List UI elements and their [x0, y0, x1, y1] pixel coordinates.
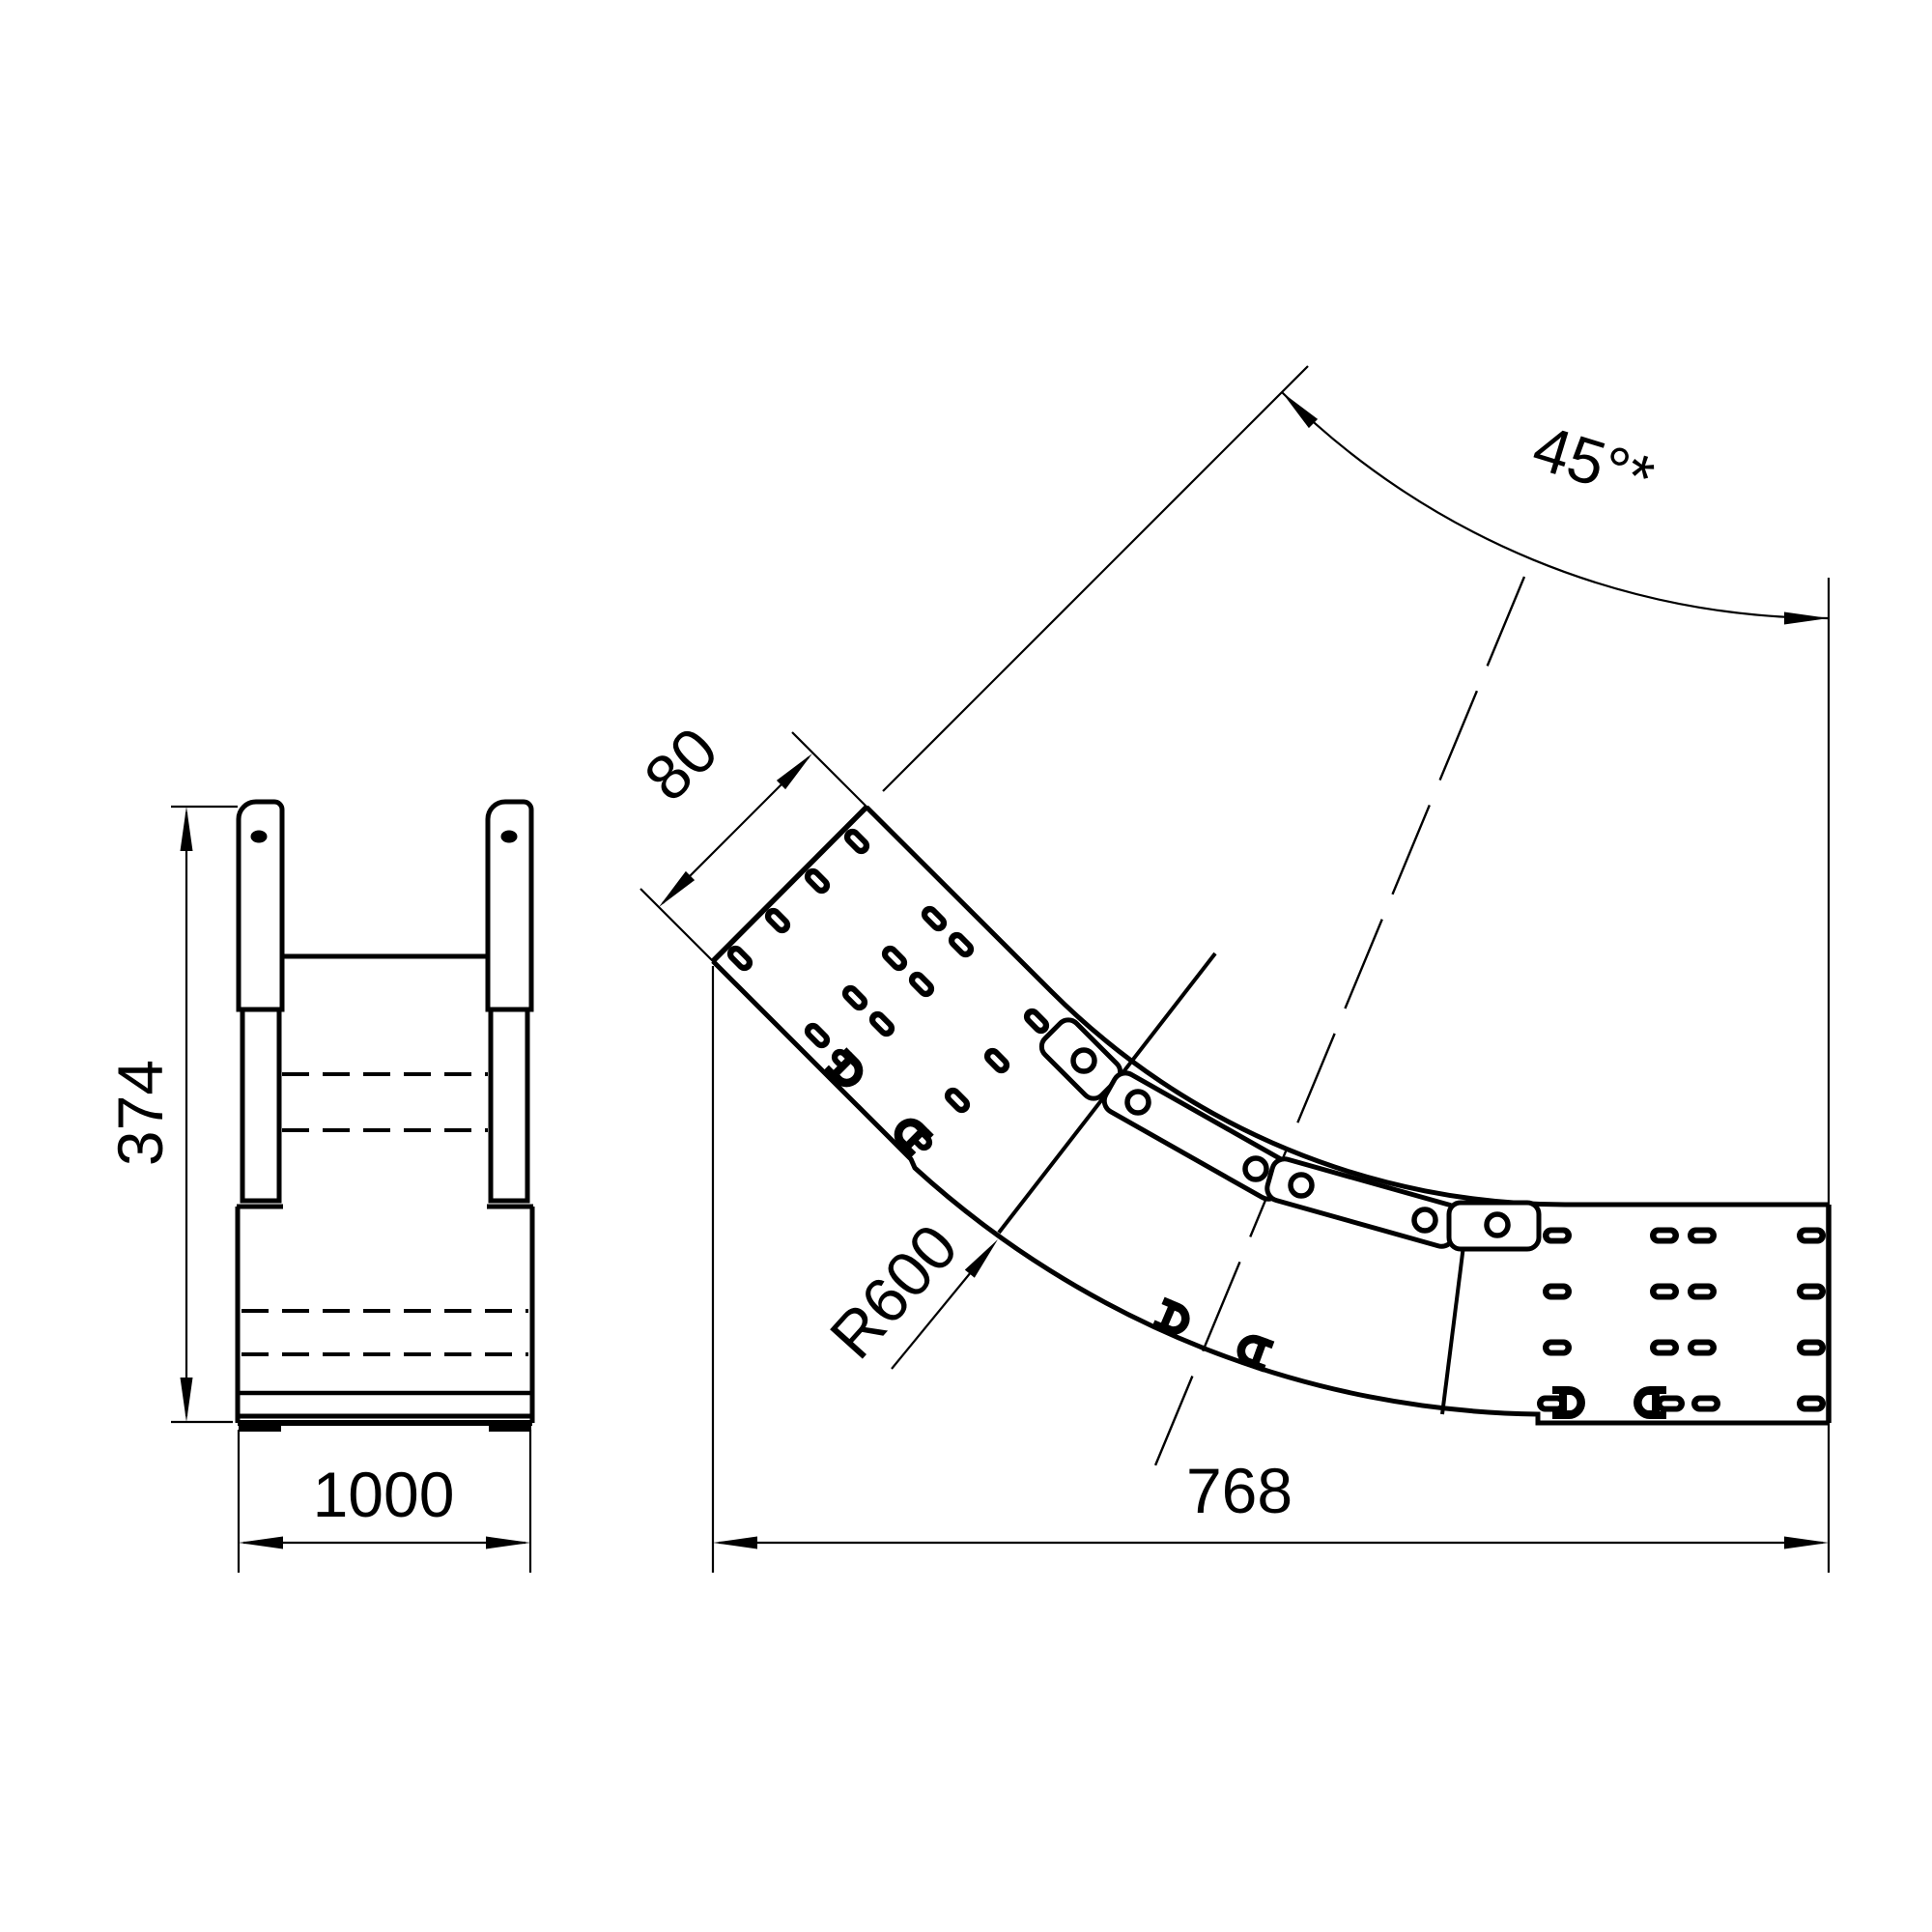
perforation-slots-inclined — [724, 825, 1052, 1153]
arrowhead — [659, 871, 695, 907]
perforation-slot — [1797, 1284, 1826, 1300]
perforation-slot — [1688, 1284, 1717, 1300]
perforation-slot — [1543, 1284, 1572, 1300]
dimension-height-374 — [171, 807, 238, 1422]
arrowhead-right — [1784, 1537, 1829, 1549]
perforation-slots-right-arm — [1537, 1228, 1826, 1412]
arrowhead-right — [486, 1537, 530, 1549]
drawing-sheet: 374 1000 — [0, 0, 1932, 1932]
perforation-slot — [866, 1008, 897, 1039]
arrowhead — [777, 753, 812, 789]
hinge-pivot-hole — [1073, 1050, 1094, 1071]
hinge-pivot-hole — [1127, 1092, 1149, 1113]
hinge-pivot-hole — [1291, 1175, 1312, 1196]
arrowhead-left — [713, 1537, 757, 1549]
front-left-lower-bar — [242, 1009, 279, 1201]
bisector-centerline — [1155, 577, 1524, 1465]
perforation-slot — [801, 1019, 833, 1051]
dimension-angle-45 — [883, 366, 1829, 791]
width-dimension-label: 1000 — [313, 1459, 455, 1530]
perforation-slot — [878, 942, 910, 974]
clamp-clip — [1233, 1330, 1275, 1373]
technical-drawing-45-degree-bend: 374 1000 — [0, 0, 1932, 1932]
length-dimension-label: 768 — [1186, 1455, 1293, 1526]
hinge-plates — [1037, 1015, 1539, 1249]
front-view — [237, 802, 533, 1432]
hinge-pivot-hole — [1487, 1214, 1508, 1236]
perforation-slot — [1020, 1005, 1052, 1037]
perforation-slot — [1797, 1340, 1826, 1356]
arrowhead-up — [181, 807, 193, 851]
perforation-slot — [1691, 1396, 1720, 1412]
perforation-slot — [1797, 1228, 1826, 1244]
perforation-slot — [1650, 1284, 1679, 1300]
front-left-rail-hole — [251, 831, 268, 843]
perforation-slot — [918, 902, 950, 934]
perforation-slot — [838, 981, 870, 1013]
clamp-clip — [1151, 1297, 1195, 1341]
hinge-pivot-hole — [1414, 1209, 1435, 1231]
perforation-slot — [1650, 1340, 1679, 1356]
hinge-plate-2 — [1100, 1068, 1294, 1204]
tray-upper-boundary — [867, 808, 1829, 1206]
arrowhead-left — [239, 1537, 283, 1549]
perforation-slot — [1688, 1228, 1717, 1244]
perforation-slot — [1543, 1228, 1572, 1244]
perforation-slot — [980, 1044, 1012, 1076]
perforation-slot — [1656, 1396, 1685, 1412]
clamp-clip — [888, 1112, 934, 1158]
perforation-slot — [905, 968, 937, 1000]
perforation-slot — [941, 1084, 973, 1116]
hinge-pivot-hole — [1245, 1158, 1266, 1179]
perforation-slot — [1543, 1340, 1572, 1356]
perforation-slot — [1650, 1228, 1679, 1244]
clamp-clip — [823, 1047, 869, 1094]
rail-height-dimension-label: 80 — [631, 714, 731, 814]
height-dimension-label: 374 — [104, 1060, 176, 1166]
hinge-plate-3 — [1264, 1156, 1462, 1249]
radius-dimension-label: R600 — [816, 1210, 972, 1372]
front-left-foot — [239, 1426, 281, 1432]
perforation-slot — [1797, 1396, 1826, 1412]
arrowhead — [1282, 392, 1318, 428]
arrowhead-down — [181, 1378, 193, 1422]
arrowhead — [1784, 612, 1829, 625]
perforation-slot — [1688, 1340, 1717, 1356]
front-right-foot — [489, 1426, 531, 1432]
perforation-slot — [945, 928, 977, 960]
angle-dimension-label: 45°* — [1525, 411, 1662, 514]
front-right-lower-bar — [491, 1009, 527, 1201]
front-hidden-edges — [241, 1074, 528, 1354]
front-right-rail-hole — [501, 831, 518, 843]
